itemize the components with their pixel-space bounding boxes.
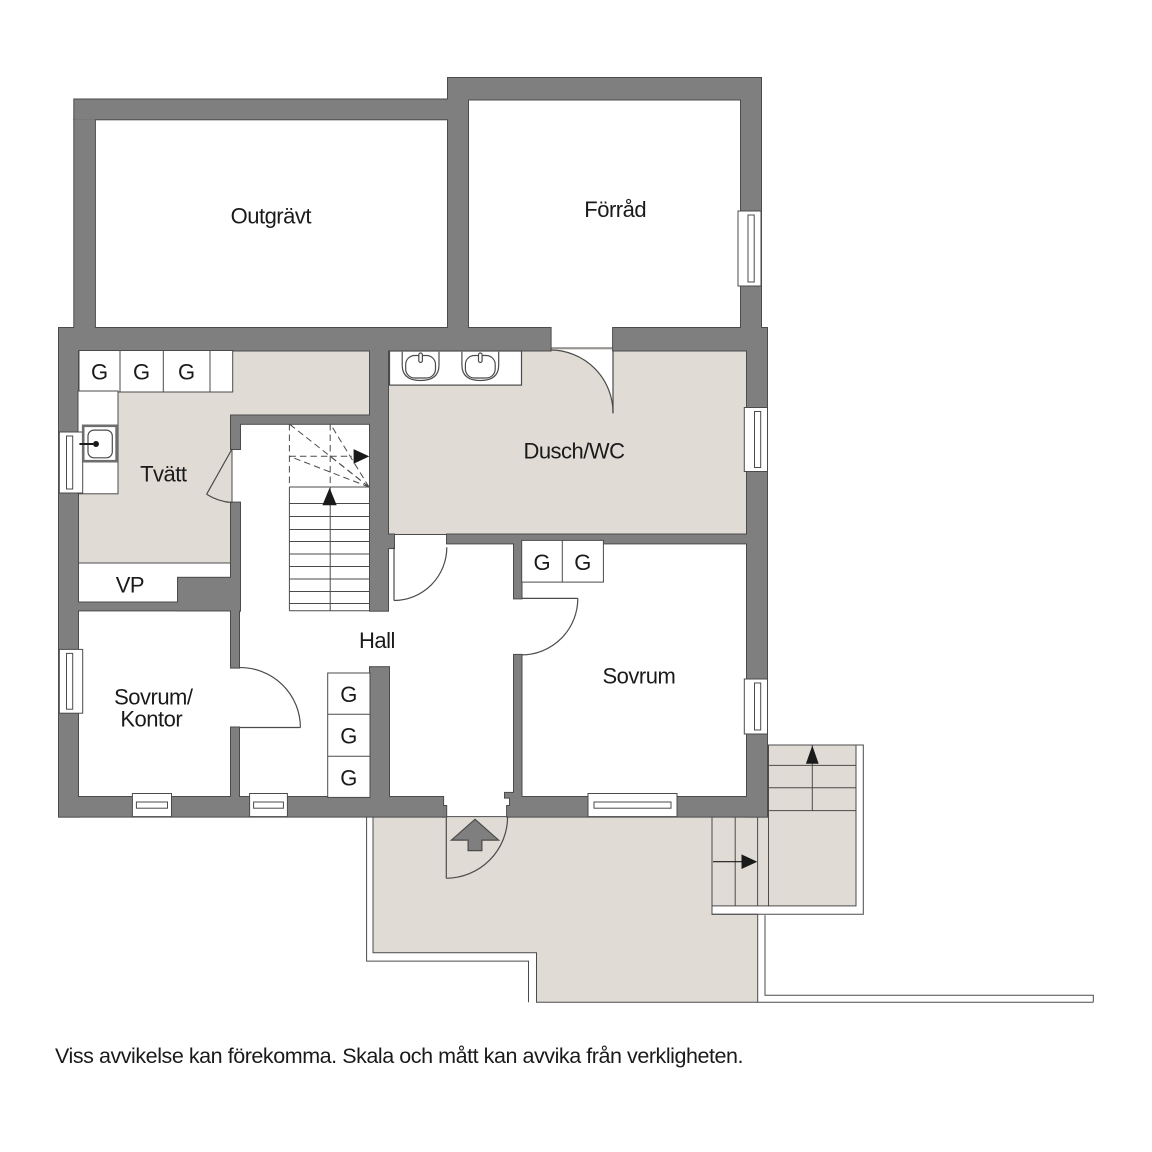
svg-text:Kontor: Kontor [120, 706, 182, 731]
svg-text:Viss avvikelse kan förekomma.: Viss avvikelse kan förekomma. Skala och … [55, 1044, 743, 1068]
svg-text:Tvätt: Tvätt [140, 462, 187, 487]
svg-text:G: G [178, 359, 195, 384]
svg-text:G: G [91, 359, 108, 384]
svg-text:VP: VP [116, 573, 144, 598]
svg-text:Hall: Hall [359, 628, 395, 653]
svg-text:G: G [340, 765, 357, 790]
svg-text:G: G [133, 359, 150, 384]
svg-text:G: G [533, 550, 550, 575]
svg-text:G: G [340, 724, 357, 749]
svg-text:Förråd: Förråd [584, 197, 646, 222]
svg-text:Dusch/WC: Dusch/WC [523, 439, 625, 464]
svg-text:G: G [574, 550, 591, 575]
svg-text:Outgrävt: Outgrävt [231, 203, 312, 228]
svg-text:G: G [340, 682, 357, 707]
svg-text:Sovrum: Sovrum [603, 664, 676, 689]
